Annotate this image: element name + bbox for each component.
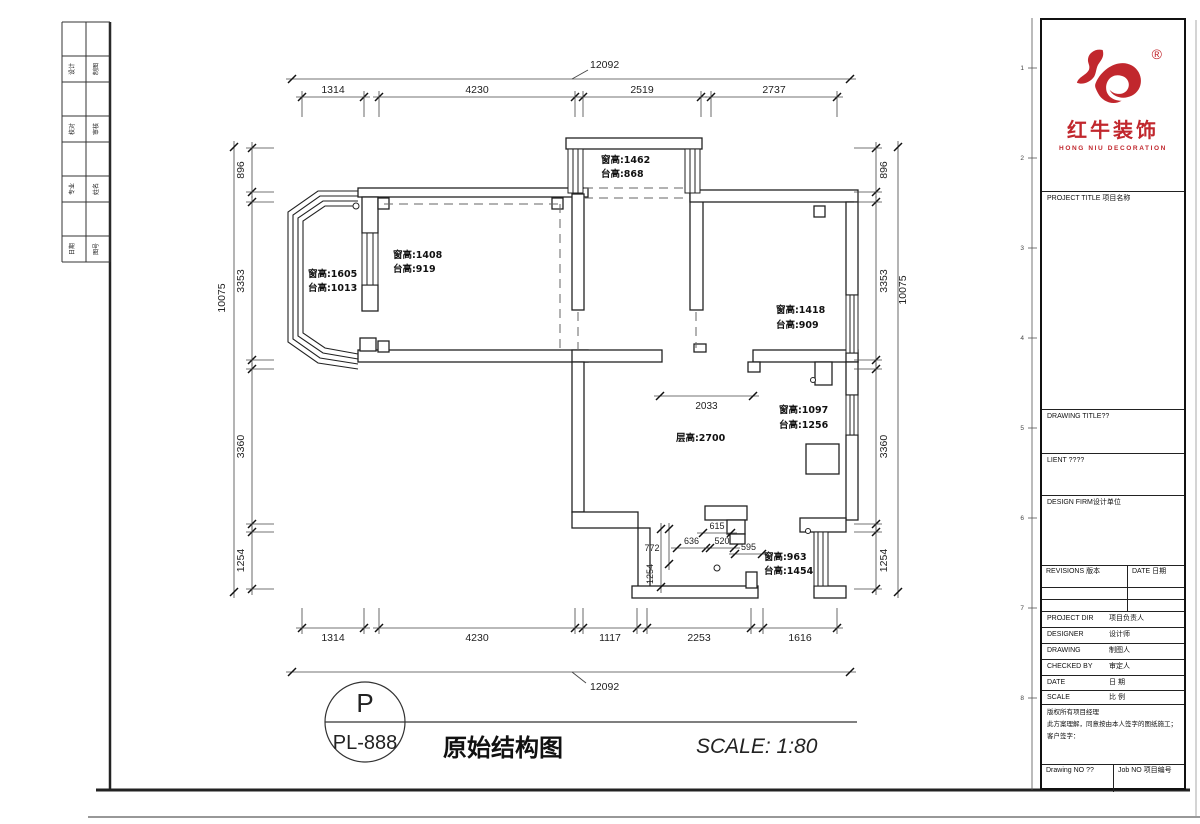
dimension-label: 595 xyxy=(741,542,756,552)
revisions-empty-row-span xyxy=(1128,600,1184,611)
note-line: 此方案理解，同意按由本人签字的图纸施工； xyxy=(1047,721,1179,729)
strip-label: 姓名 xyxy=(92,183,100,195)
plan-walls-rect xyxy=(806,444,839,474)
dimension-label: 1254 xyxy=(645,564,655,584)
plan-walls-rect xyxy=(815,362,832,385)
dimension-leaders-line xyxy=(572,672,586,683)
window-note: 台高:909 xyxy=(776,319,819,331)
plan-walls-rect xyxy=(846,353,858,362)
fold-mark: 7 xyxy=(1020,605,1024,612)
ceiling-height-note: 层高:2700 xyxy=(676,432,726,444)
drawing-no-label: Drawing NO ?? xyxy=(1042,765,1114,792)
plan-walls-rect xyxy=(358,350,588,362)
checked-by-row-span: 审定人 xyxy=(1109,663,1130,672)
checked-by-row-span: CHECKED BY xyxy=(1047,663,1099,672)
plan-walls-rect xyxy=(362,197,378,233)
strip-label: 校对 xyxy=(68,123,76,135)
window-note: 台高:1454 xyxy=(764,565,814,577)
plan-walls-rect xyxy=(846,202,858,295)
door-marker-circles-circle xyxy=(353,203,359,209)
window-note: 台高:1256 xyxy=(779,419,829,431)
plan-walls-rect xyxy=(746,572,757,588)
strip-label: 制图 xyxy=(92,63,100,75)
fold-mark: 8 xyxy=(1020,695,1024,702)
scale-row-span: SCALE xyxy=(1047,694,1099,701)
fold-mark: 5 xyxy=(1020,425,1024,432)
dimension-label: 4230 xyxy=(465,84,489,96)
brand-name-en: HONG NIU DECORATION xyxy=(1042,145,1184,153)
revisions-col1: REVISIONS 版本 xyxy=(1042,566,1128,587)
dimension-leaders-line xyxy=(572,70,588,79)
drawing-row-span: 制图人 xyxy=(1109,647,1130,656)
designer-row: DESIGNER设计师 xyxy=(1042,628,1184,644)
dimension-label: 3360 xyxy=(235,435,247,459)
window-note: 窗高:1605 xyxy=(308,268,357,280)
dimension-label: 3353 xyxy=(235,269,247,293)
project-title-label: PROJECT TITLE 项目名称 xyxy=(1047,195,1130,202)
designer-row-span: 设计师 xyxy=(1109,631,1130,640)
project-dir-row: PROJECT DIR项目负责人 xyxy=(1042,612,1184,628)
revisions-table: REVISIONS 版本 DATE 日期 xyxy=(1042,566,1184,612)
drawing-title-label: DRAWING TITLE?? xyxy=(1047,413,1109,420)
window-note: 窗高:1418 xyxy=(776,304,826,316)
dim-bottom-overall-label: 12092 xyxy=(590,681,619,693)
copyright-notes: 版权所有项目经理 此方案理解，同意按由本人签字的图纸施工； 客户签字： xyxy=(1042,705,1184,765)
window-symbols-rect xyxy=(568,149,583,193)
dimension-label: 2737 xyxy=(762,84,786,96)
plan-walls-rect xyxy=(814,206,825,217)
design-firm-label: DESIGN FIRM设计单位 xyxy=(1047,499,1121,506)
window-note: 窗高:1462 xyxy=(601,154,650,166)
date-row-span: 日 期 xyxy=(1109,679,1125,687)
plan-walls-rect xyxy=(690,194,703,310)
dimension-label: 3353 xyxy=(878,269,890,293)
dimension-label: 10075 xyxy=(897,275,909,304)
binding-strip-labels: 设计制图校对审核专业姓名日期图号 xyxy=(68,63,100,255)
plan-walls-rect xyxy=(846,362,858,395)
dimension-label: 1117 xyxy=(599,632,621,644)
window-symbols-rect xyxy=(846,395,858,435)
door-marker-circles-circle xyxy=(811,378,816,383)
project-dir-row-span: PROJECT DIR xyxy=(1047,615,1099,624)
plan-walls xyxy=(358,138,858,598)
plan-walls-rect xyxy=(566,138,702,149)
plan-walls-rect xyxy=(846,435,858,520)
revisions-empty-row xyxy=(1042,600,1184,612)
revisions-empty-row-span xyxy=(1042,600,1128,611)
dimension-label: 1254 xyxy=(235,549,247,573)
client-section: LIENT ???? xyxy=(1042,454,1184,496)
binding-strip xyxy=(62,22,110,262)
plan-walls-rect xyxy=(362,285,378,311)
revisions-empty-row xyxy=(1042,588,1184,600)
badge-code: PL-888 xyxy=(333,732,398,754)
scale-row: SCALE比 例 xyxy=(1042,691,1184,705)
dimension-label: 615 xyxy=(709,521,724,531)
number-footer: Drawing NO ?? Job NO 项目编号 xyxy=(1042,765,1184,792)
designer-row-span: DESIGNER xyxy=(1047,631,1099,640)
revisions-empty-row-span xyxy=(1128,588,1184,599)
scale-row-span: 比 例 xyxy=(1109,694,1125,701)
badge-letter: P xyxy=(356,688,373,718)
drawing-row: DRAWING制图人 xyxy=(1042,644,1184,660)
fold-mark: 3 xyxy=(1020,245,1024,252)
fold-marks: 12345678 xyxy=(1020,65,1037,702)
strip-label: 审核 xyxy=(92,123,100,135)
title-block: ® 红牛装饰 HONG NIU DECORATION PROJECT TITLE… xyxy=(1040,18,1186,790)
strip-label: 专业 xyxy=(68,183,76,195)
dimension-label: 2519 xyxy=(630,84,654,96)
window-note: 台高:919 xyxy=(393,263,436,275)
dimension-label: 10075 xyxy=(216,283,228,312)
dimension-label: 2253 xyxy=(687,632,711,644)
door-marker-circles-circle xyxy=(714,565,720,571)
window-note: 台高:1013 xyxy=(308,282,357,294)
design-firm-section: DESIGN FIRM设计单位 xyxy=(1042,496,1184,566)
fold-mark: 1 xyxy=(1020,65,1024,72)
plan-walls-rect xyxy=(727,520,745,534)
plan-walls-rect xyxy=(748,362,760,372)
date-row: DATE日 期 xyxy=(1042,676,1184,691)
window-symbols-rect xyxy=(362,233,378,285)
checked-by-row: CHECKED BY审定人 xyxy=(1042,660,1184,676)
window-note: 窗高:963 xyxy=(764,551,807,563)
dimension-label: 1616 xyxy=(788,632,812,644)
footer-titlebar: P PL-888 原始结构图 SCALE: 1:80 xyxy=(325,682,857,762)
fold-mark: 6 xyxy=(1020,515,1024,522)
window-symbols-rect xyxy=(846,295,858,353)
strip-label: 图号 xyxy=(93,243,100,255)
brand-logo-box: ® 红牛装饰 HONG NIU DECORATION xyxy=(1042,20,1184,192)
bay-window-polyline xyxy=(303,206,358,354)
bull-logo-icon-path xyxy=(1095,63,1141,103)
fold-mark: 2 xyxy=(1020,155,1024,162)
dimension-label: 520 xyxy=(714,536,729,546)
plan-walls-rect xyxy=(572,194,584,310)
brand-name-cn: 红牛装饰 xyxy=(1042,118,1184,143)
bay-window xyxy=(288,191,358,369)
dimension-label: 896 xyxy=(235,161,247,179)
drawing-row-span: DRAWING xyxy=(1047,647,1099,656)
window-note: 窗高:1408 xyxy=(393,249,443,261)
plan-walls-rect xyxy=(572,512,638,528)
job-no-label: Job NO 项目编号 xyxy=(1114,765,1176,792)
window-symbols-rect xyxy=(685,149,700,193)
note-line: 版权所有项目经理 xyxy=(1047,709,1179,717)
window-note: 台高:868 xyxy=(601,168,644,180)
strip-label: 设计 xyxy=(68,63,76,75)
plan-walls-rect xyxy=(378,341,389,352)
dimension-label: 4230 xyxy=(465,632,489,644)
revisions-header: REVISIONS 版本 DATE 日期 xyxy=(1042,566,1184,588)
date-row-span: DATE xyxy=(1047,679,1099,687)
plan-walls-rect xyxy=(705,506,747,520)
drawing-title-section: DRAWING TITLE?? xyxy=(1042,410,1184,454)
plan-walls-rect xyxy=(814,586,846,598)
registered-mark: ® xyxy=(1152,46,1162,64)
note-line: 客户签字： xyxy=(1047,733,1179,741)
project-dir-row-span: 项目负责人 xyxy=(1109,615,1144,624)
revisions-empty-row-span xyxy=(1042,588,1128,599)
fold-mark: 4 xyxy=(1020,335,1024,342)
drawing-title: 原始结构图 xyxy=(443,734,563,762)
client-label: LIENT ???? xyxy=(1047,457,1084,464)
dimension-label: 2033 xyxy=(695,401,718,412)
door-marker-circles-circle xyxy=(806,529,811,534)
dimension-label: 1254 xyxy=(878,549,890,573)
window-note: 窗高:1097 xyxy=(779,404,828,416)
dimension-label: 1314 xyxy=(321,632,345,644)
dimension-label: 3360 xyxy=(878,435,890,459)
dimension-chains: 1314423025192737131442301117225316162033… xyxy=(216,75,909,676)
drawing-sheet: { "frame": { "strip_labels": ["设计","制图",… xyxy=(0,0,1200,824)
plan-walls-rect xyxy=(572,350,662,362)
revisions-col2: DATE 日期 xyxy=(1128,566,1184,587)
plan-walls-rect xyxy=(358,188,588,197)
dimension-label: 636 xyxy=(684,536,699,546)
window-symbols-rect xyxy=(814,532,828,586)
bull-logo-icon xyxy=(1070,46,1156,116)
strip-label: 日期 xyxy=(68,243,76,255)
plan-walls-rect xyxy=(690,190,858,202)
plan-walls-rect xyxy=(572,362,584,512)
scale-note: SCALE: 1:80 xyxy=(696,735,818,758)
dimension-label: 896 xyxy=(878,161,890,179)
floor-plan-canvas: 设计制图校对审核专业姓名日期图号 12345678 xyxy=(0,0,1200,824)
plan-walls-rect xyxy=(632,586,758,598)
dim-top-overall-label: 12092 xyxy=(590,59,619,71)
plan-walls-rect xyxy=(360,338,376,351)
project-title-section: PROJECT TITLE 项目名称 xyxy=(1042,192,1184,410)
dimension-label: 772 xyxy=(644,543,659,553)
dimension-label: 1314 xyxy=(321,84,345,96)
plan-walls-rect xyxy=(753,350,858,362)
